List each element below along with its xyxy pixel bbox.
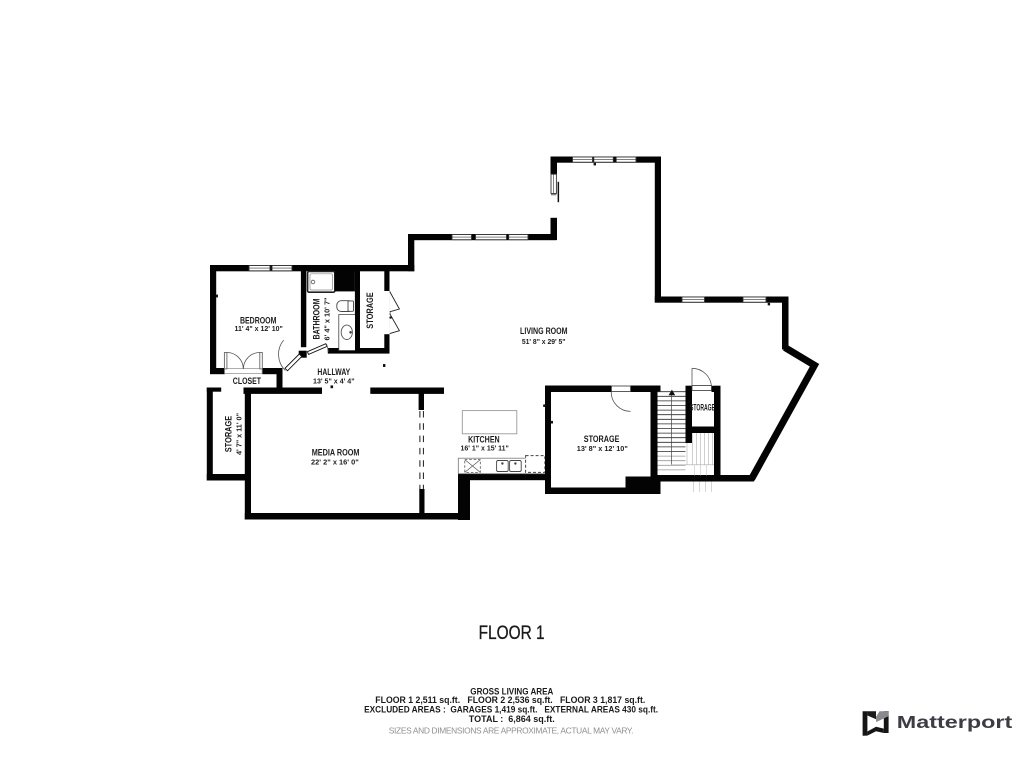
svg-text:13' 8" x 12' 10": 13' 8" x 12' 10" — [577, 444, 628, 453]
svg-text:22' 2" x 16' 0": 22' 2" x 16' 0" — [311, 457, 359, 466]
svg-text:STORAGE: STORAGE — [584, 434, 620, 444]
svg-text:STORAGE: STORAGE — [690, 402, 715, 412]
svg-text:HALLWAY: HALLWAY — [317, 367, 350, 377]
svg-text:13' 5" x 4' 4": 13' 5" x 4' 4" — [313, 377, 355, 386]
svg-text:6' 4" x 10' 7": 6' 4" x 10' 7" — [323, 297, 332, 340]
svg-text:Matterport: Matterport — [897, 712, 1013, 732]
svg-text:11' 4" x 12' 10": 11' 4" x 12' 10" — [235, 324, 284, 333]
svg-text:4' 7" x 11' 0": 4' 7" x 11' 0" — [235, 413, 244, 455]
svg-text:STORAGE: STORAGE — [365, 292, 375, 329]
svg-text:16' 1" x 15' 11": 16' 1" x 15' 11" — [461, 444, 510, 453]
svg-text:LIVING ROOM: LIVING ROOM — [520, 326, 568, 336]
svg-text:FLOOR 1: FLOOR 1 — [479, 622, 545, 644]
svg-text:MEDIA ROOM: MEDIA ROOM — [312, 447, 360, 457]
svg-text:BATHROOM: BATHROOM — [312, 298, 322, 339]
svg-text:CLOSET: CLOSET — [233, 376, 261, 386]
svg-text:51' 8" x 29' 5": 51' 8" x 29' 5" — [522, 337, 566, 346]
svg-text:EXCLUDED AREAS : GARAGES 1,41: EXCLUDED AREAS : GARAGES 1,419 sq.ft. EX… — [364, 704, 658, 714]
svg-text:SIZES AND DIMENSIONS ARE APPRO: SIZES AND DIMENSIONS ARE APPROXIMATE, AC… — [389, 726, 634, 736]
svg-text:TOTAL : 6,864 sq.ft.: TOTAL : 6,864 sq.ft. — [469, 714, 555, 724]
svg-text:FLOOR 1 2,511 sq.ft. FLOOR 2: FLOOR 1 2,511 sq.ft. FLOOR 2 2,536 sq.ft… — [375, 695, 645, 705]
svg-text:STORAGE: STORAGE — [224, 416, 234, 453]
